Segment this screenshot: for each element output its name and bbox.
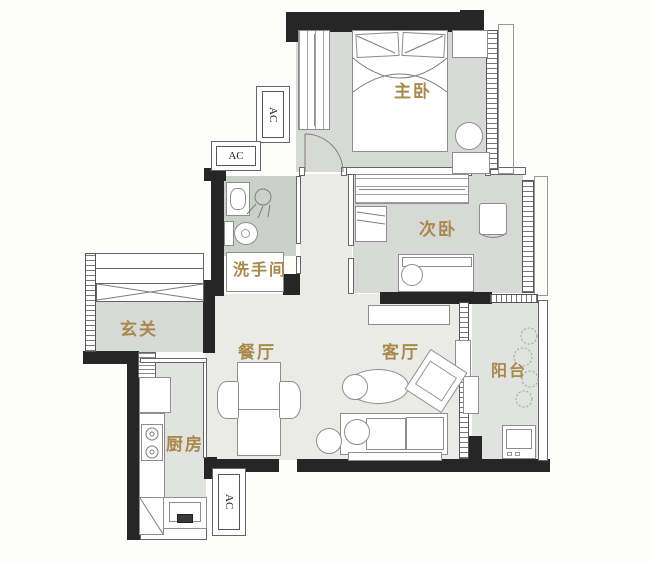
wardrobe-rail (359, 189, 464, 190)
wall-secondbed-bottom (380, 292, 492, 304)
kitchen-top-wall (140, 358, 207, 363)
wall-master-top (286, 12, 484, 32)
toilet-bowl-inner (241, 229, 250, 238)
armchair-seat (415, 361, 457, 402)
stool-master (455, 122, 483, 150)
floor-plan: AC AC AC (0, 0, 650, 564)
nightstand-bottom-right (452, 152, 490, 174)
desk-second (355, 206, 387, 242)
sofa-cushion-2 (406, 417, 444, 450)
kitchen-corner-unit (139, 497, 164, 535)
dining-chair-right (279, 381, 301, 419)
entry-left-wall (85, 253, 96, 352)
chair-second (479, 203, 507, 235)
table-seam (238, 409, 280, 410)
door-jamb-master-right (341, 167, 347, 176)
daybed-pillow (401, 264, 423, 286)
sofa-round-pillow (344, 419, 370, 445)
window-balcony-top (490, 294, 538, 303)
kitchen-faucet (177, 514, 193, 523)
wall-second-left-b (348, 258, 354, 294)
door-jamb-master-left (299, 167, 305, 176)
balcony-right-wall (538, 300, 548, 461)
entry-cabinet-row2 (85, 268, 204, 284)
bay-outline-second (534, 176, 548, 296)
wall-entry-right (203, 280, 215, 353)
wardrobe-second (355, 174, 469, 204)
washer-knob-2 (515, 452, 520, 456)
label-balcony: 阳台 (483, 356, 535, 382)
window-second-right (522, 180, 534, 293)
label-entryway: 玄关 (110, 314, 168, 340)
wall-second-left-a (348, 174, 354, 246)
ac-label: AC (267, 107, 279, 122)
bathroom-sink-basin (230, 188, 246, 210)
corridor-floor (300, 174, 352, 296)
side-stool (316, 428, 342, 454)
sofa-base (348, 452, 442, 461)
sliding-door-panel2 (463, 376, 479, 414)
toilet-tank (224, 221, 234, 246)
label-dining-room: 餐厅 (228, 337, 286, 363)
tv-bench (368, 305, 450, 325)
wall-balcony-stub (468, 436, 482, 462)
wall-bath-right-a (296, 176, 301, 244)
coffee-table-round (342, 374, 368, 400)
label-living-room: 客厅 (372, 337, 430, 363)
ac-unit-kitchen: AC (218, 474, 240, 530)
kitchen-cabinet (139, 377, 171, 413)
label-bathroom: 洗手间 (226, 256, 294, 280)
wardrobe-master (298, 30, 330, 130)
ac-label: AC (228, 150, 243, 162)
entry-door-threshold (138, 352, 156, 378)
ac-unit-bedroom-horizontal: AC (216, 146, 256, 166)
washer-knob-1 (507, 452, 512, 456)
pillow-right (401, 32, 445, 58)
ac-unit-bedroom-vertical: AC (262, 91, 284, 138)
nightstand-top-right (452, 30, 488, 58)
wall-bath-left (211, 170, 224, 296)
label-master-bedroom: 主卧 (383, 76, 443, 102)
label-kitchen: 厨房 (156, 430, 214, 454)
wall-bath-right-b (296, 256, 301, 274)
entry-shoe-cabinet (96, 283, 204, 302)
label-second-bedroom: 次卧 (408, 214, 468, 240)
pillow-left (355, 32, 399, 58)
washing-machine-door (506, 429, 532, 449)
wardrobe-rail (314, 34, 315, 126)
dining-table (237, 362, 281, 456)
dining-chair-left (217, 381, 239, 419)
ac-label: AC (223, 494, 235, 509)
entry-cabinet-row1 (85, 253, 204, 269)
bay-outline-master (498, 24, 514, 174)
sofa-cushion-1 (366, 418, 406, 450)
